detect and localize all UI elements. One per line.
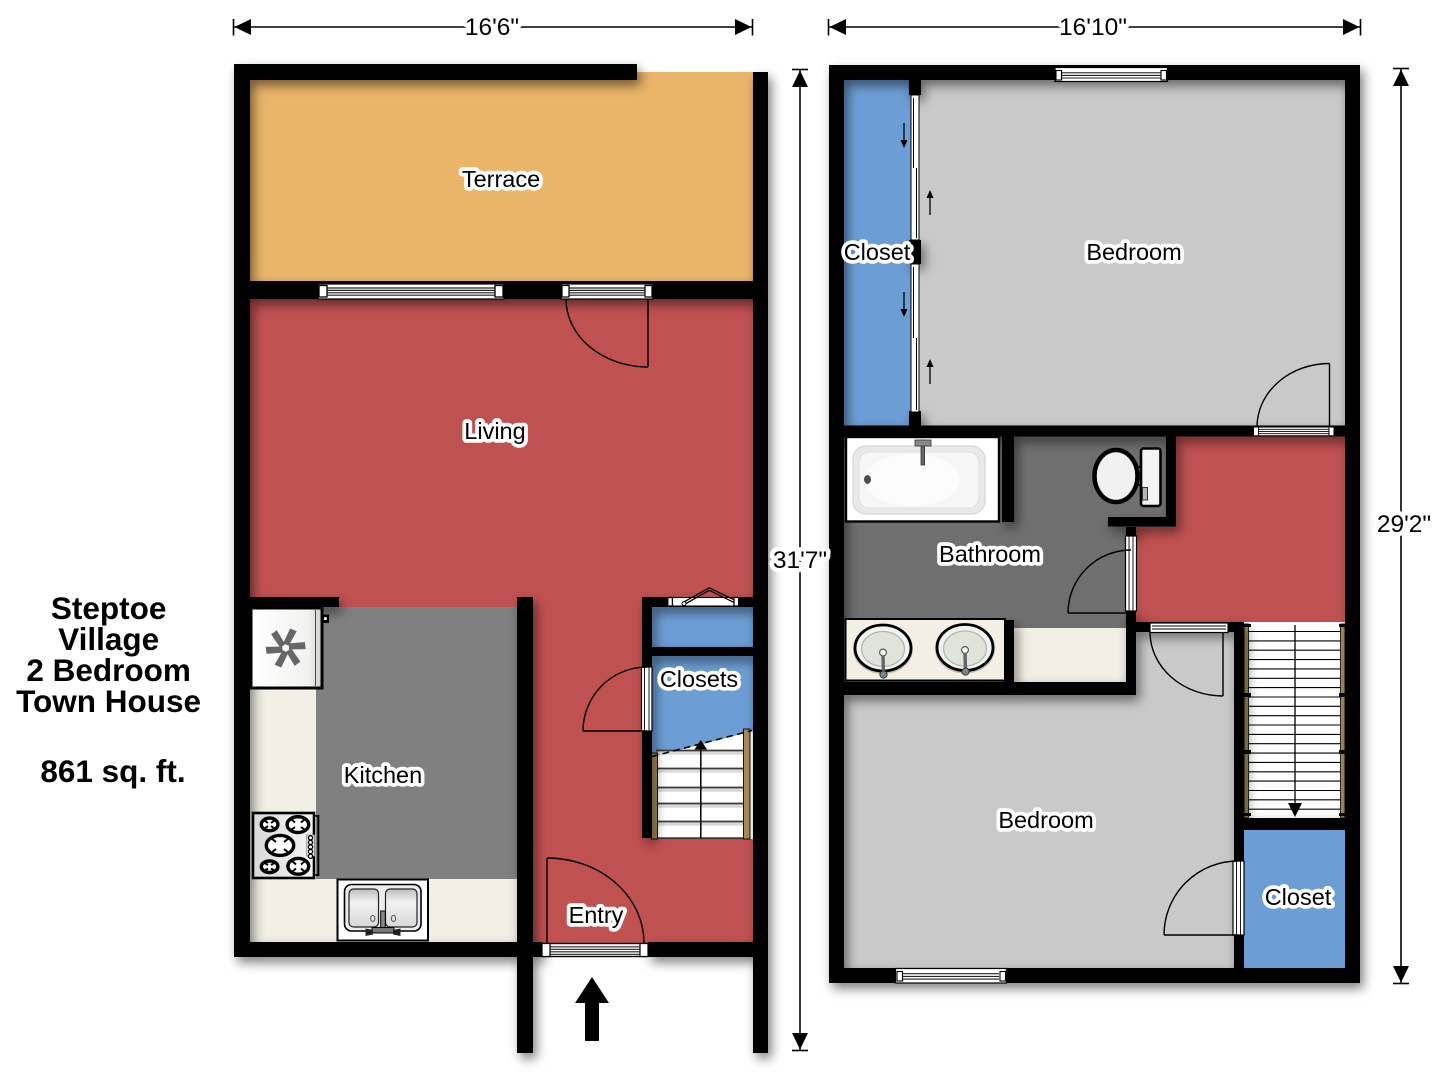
svg-text:Entry: Entry <box>569 902 624 928</box>
svg-text:Bathroom: Bathroom <box>939 541 1041 567</box>
svg-text:31'7": 31'7" <box>773 547 827 574</box>
svg-text:16'10": 16'10" <box>1059 14 1127 41</box>
svg-text:Kitchen: Kitchen <box>344 762 422 788</box>
svg-text:Living: Living <box>464 418 525 444</box>
svg-text:Closet: Closet <box>1265 884 1332 910</box>
svg-text:29'2": 29'2" <box>1377 511 1431 538</box>
svg-text:Bedroom: Bedroom <box>1086 239 1181 265</box>
svg-text:Terrace: Terrace <box>462 166 540 192</box>
svg-text:Closets: Closets <box>660 666 738 692</box>
svg-text:Closet: Closet <box>844 239 911 265</box>
svg-text:16'6": 16'6" <box>465 14 519 41</box>
svg-text:Bedroom: Bedroom <box>998 807 1093 833</box>
